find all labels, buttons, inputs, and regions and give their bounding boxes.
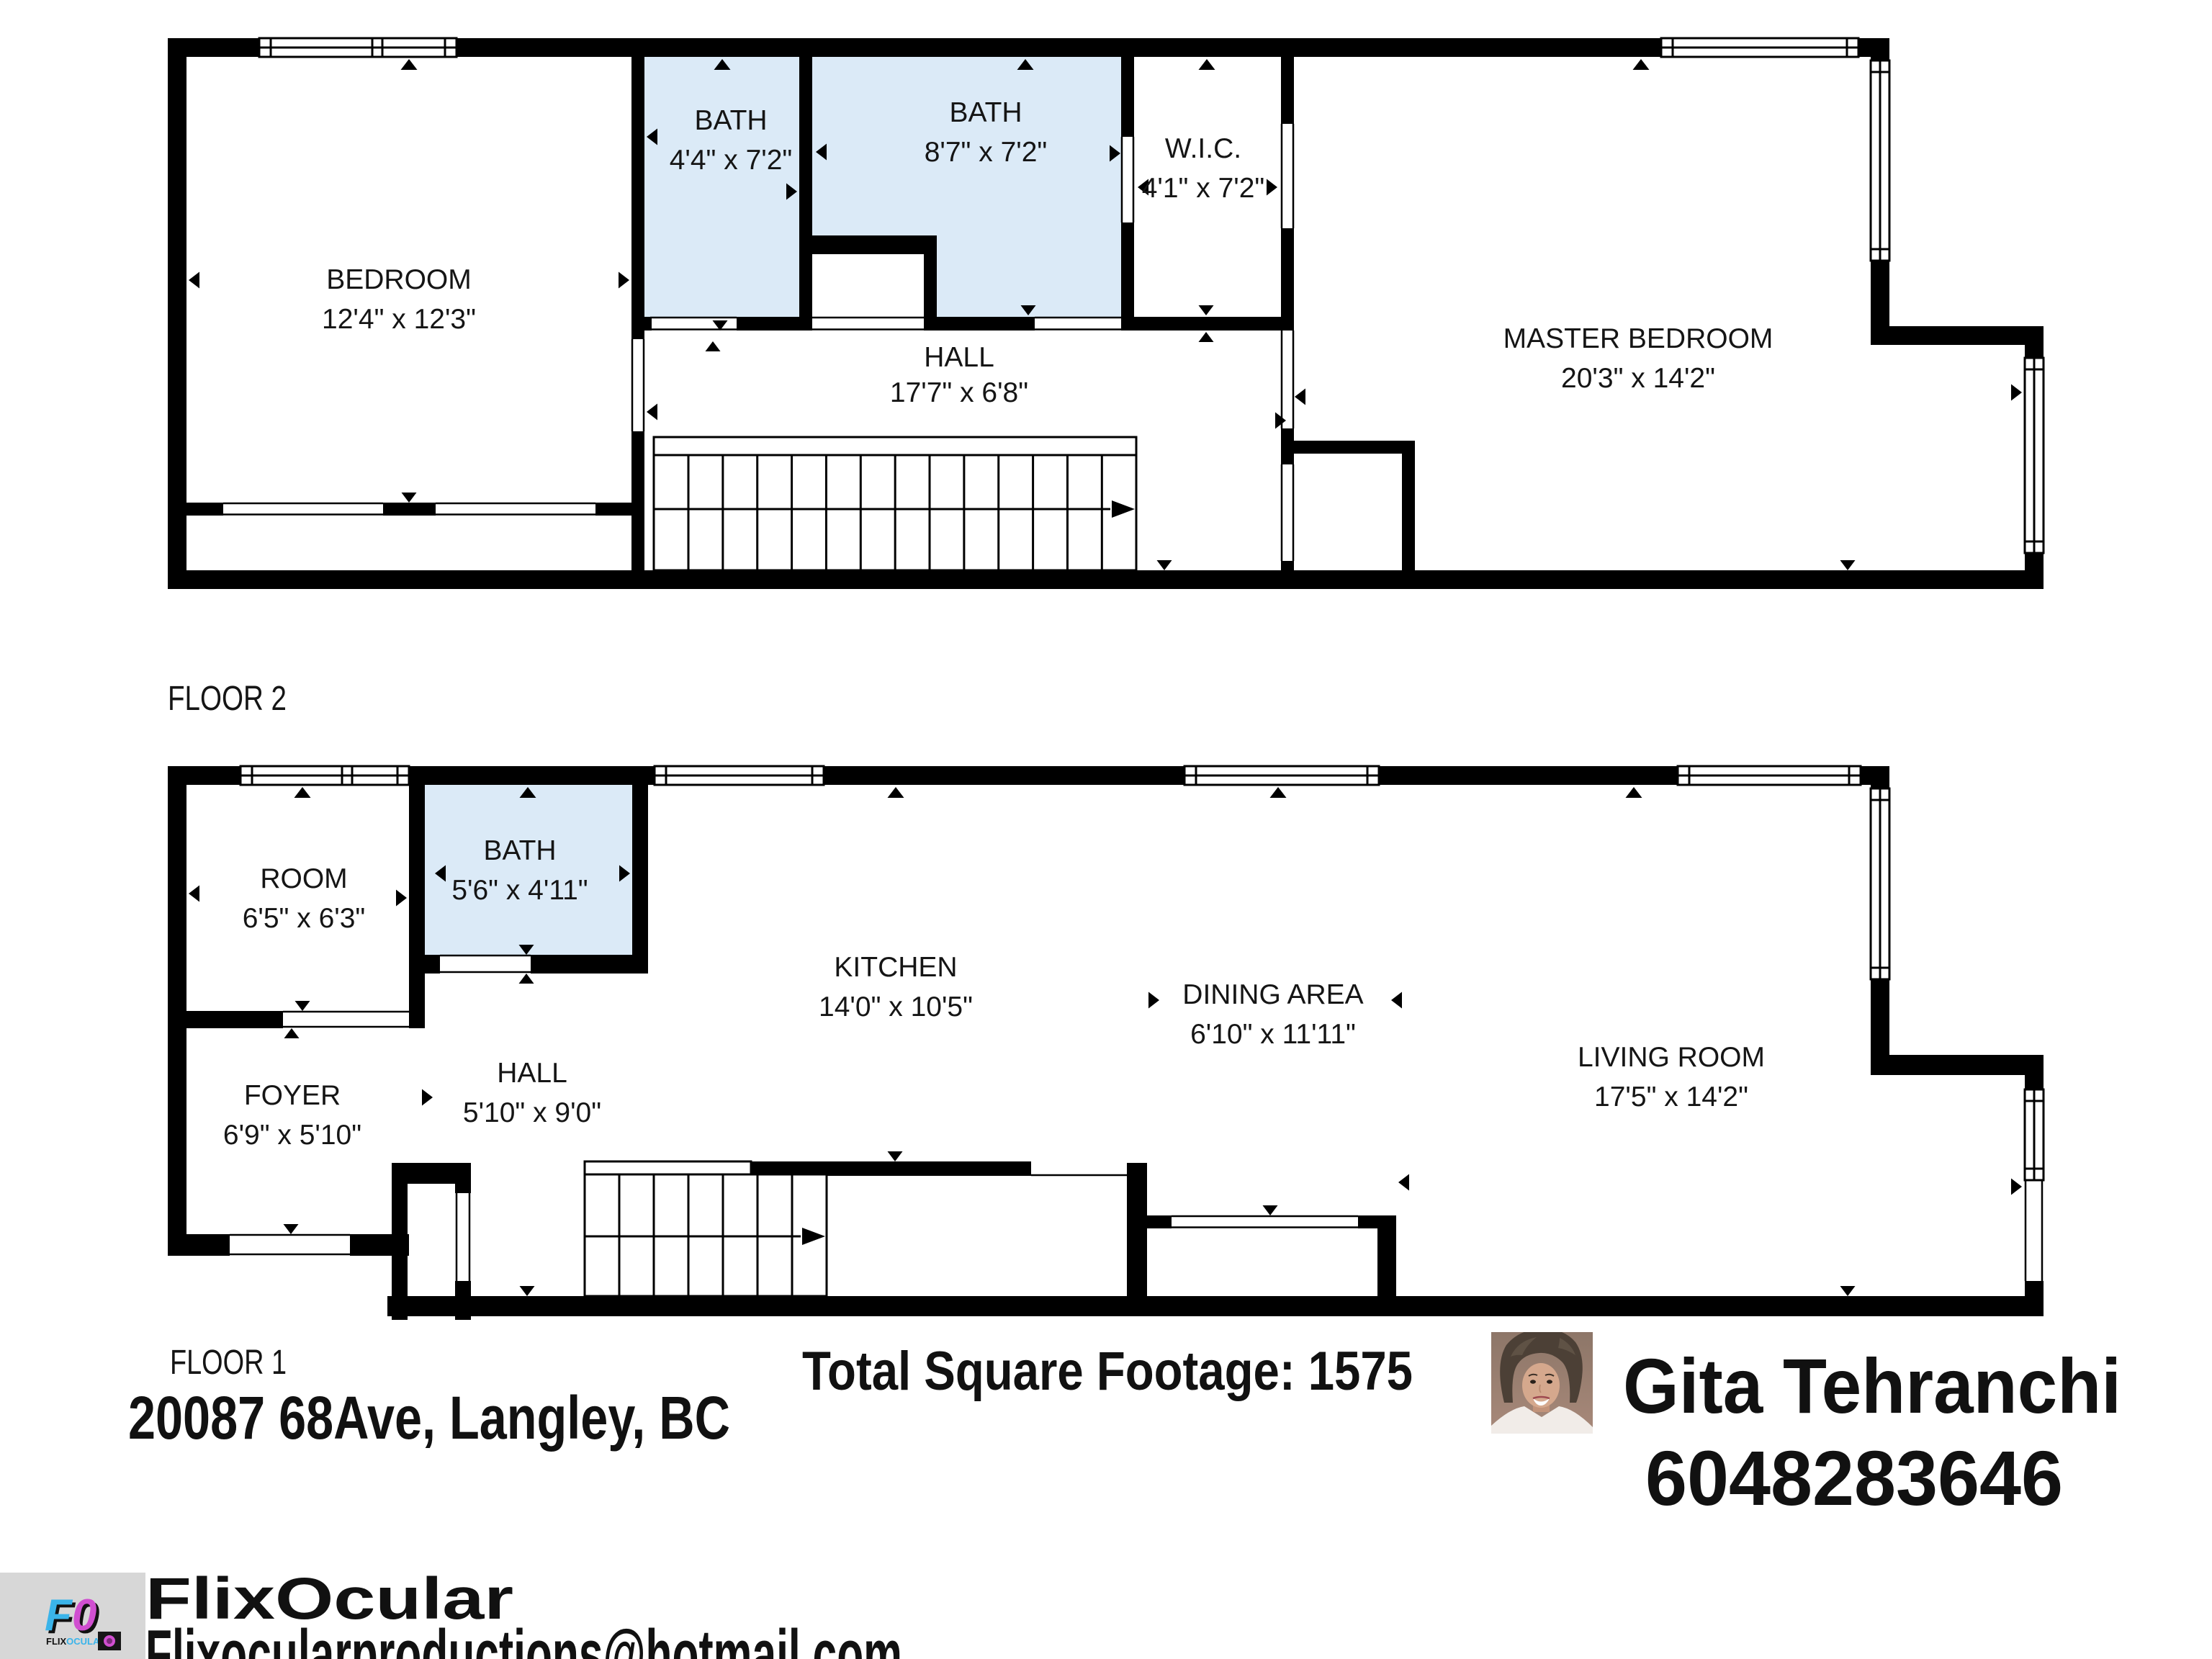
svg-text:FOYER: FOYER — [244, 1080, 341, 1111]
svg-text:F0: F0 — [45, 1591, 96, 1640]
svg-text:HALL: HALL — [497, 1058, 567, 1089]
svg-text:BATH: BATH — [483, 835, 556, 866]
svg-text:DINING AREA: DINING AREA — [1182, 979, 1363, 1010]
svg-text:20'3" x 14'2": 20'3" x 14'2" — [1561, 363, 1715, 394]
svg-text:6048283646: 6048283646 — [1645, 1434, 2063, 1521]
svg-text:Gita Tehranchi: Gita Tehranchi — [1623, 1342, 2121, 1429]
svg-text:LIVING ROOM: LIVING ROOM — [1578, 1042, 1765, 1073]
svg-text:MASTER BEDROOM: MASTER BEDROOM — [1503, 323, 1773, 354]
svg-text:8'7" x 7'2": 8'7" x 7'2" — [925, 137, 1048, 168]
svg-text:5'6" x 4'11": 5'6" x 4'11" — [451, 875, 588, 906]
svg-text:5'10" x 9'0": 5'10" x 9'0" — [463, 1097, 601, 1128]
svg-text:4'4" x 7'2": 4'4" x 7'2" — [670, 145, 793, 176]
svg-text:6'10" x 11'11": 6'10" x 11'11" — [1190, 1019, 1356, 1050]
svg-text:17'7" x 6'8": 17'7" x 6'8" — [890, 377, 1028, 408]
svg-text:FLIXOCULAR: FLIXOCULAR — [46, 1636, 107, 1647]
svg-text:6'9" x 5'10": 6'9" x 5'10" — [223, 1120, 361, 1151]
svg-text:4'1" x 7'2": 4'1" x 7'2" — [1142, 173, 1265, 204]
svg-text:FLOOR 2: FLOOR 2 — [168, 680, 287, 718]
svg-text:Flixocularproductions@hotmail.: Flixocularproductions@hotmail.com — [145, 1616, 902, 1659]
svg-text:20087 68Ave, Langley, BC: 20087 68Ave, Langley, BC — [128, 1384, 730, 1452]
svg-text:14'0" x 10'5": 14'0" x 10'5" — [819, 992, 973, 1022]
svg-text:Total Square Footage: 1575: Total Square Footage: 1575 — [802, 1341, 1413, 1402]
svg-text:BATH: BATH — [949, 97, 1022, 128]
svg-text:KITCHEN: KITCHEN — [834, 952, 957, 983]
svg-text:W.I.C.: W.I.C. — [1165, 133, 1241, 164]
svg-text:17'5" x 14'2": 17'5" x 14'2" — [1594, 1082, 1748, 1112]
svg-text:6'5" x 6'3": 6'5" x 6'3" — [243, 903, 366, 934]
svg-text:HALL: HALL — [924, 342, 994, 373]
svg-text:FLOOR 1: FLOOR 1 — [170, 1344, 287, 1382]
svg-text:12'4" x 12'3": 12'4" x 12'3" — [322, 304, 476, 335]
svg-text:ROOM: ROOM — [260, 863, 347, 894]
svg-text:BEDROOM: BEDROOM — [326, 264, 472, 295]
svg-text:BATH: BATH — [694, 105, 767, 136]
